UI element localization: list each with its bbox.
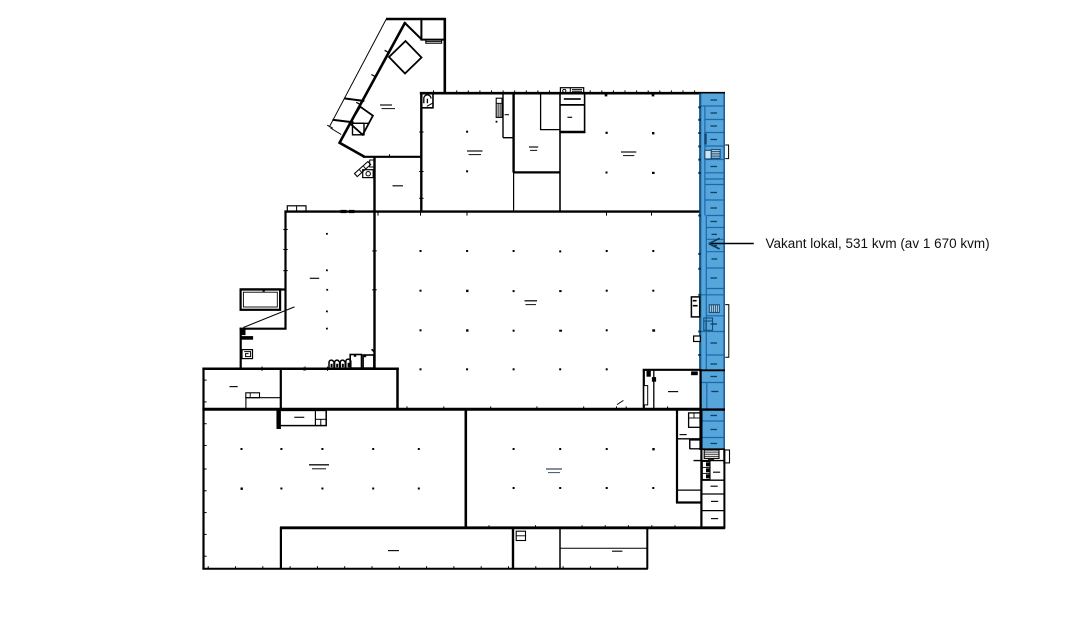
- svg-text:Vakant lokal, 531 kvm (av 1 67: Vakant lokal, 531 kvm (av 1 670 kvm): [766, 236, 990, 251]
